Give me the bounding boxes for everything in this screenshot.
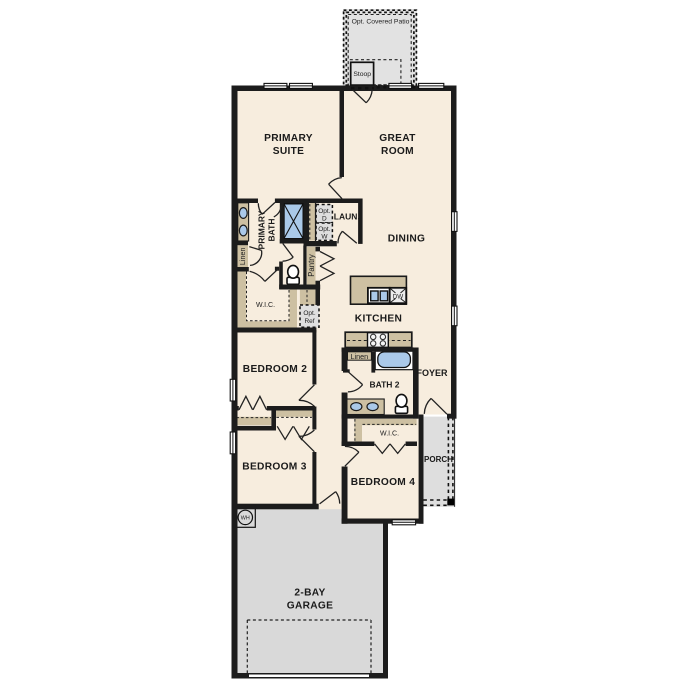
svg-text:KITCHEN: KITCHEN [355,314,402,325]
svg-text:PRIMARY: PRIMARY [264,133,313,144]
svg-text:GARAGE: GARAGE [287,601,334,612]
svg-text:Stoop: Stoop [353,71,371,78]
svg-text:Opt. Covered Patio: Opt. Covered Patio [352,18,410,25]
svg-text:FOYER: FOYER [416,368,448,378]
svg-text:GREAT: GREAT [379,133,416,144]
svg-text:Linen: Linen [351,352,369,361]
svg-text:Opt.: Opt. [318,208,330,215]
svg-text:BATH: BATH [267,219,277,242]
svg-text:BEDROOM 3: BEDROOM 3 [242,462,306,473]
svg-text:W: W [321,234,328,241]
svg-text:Opt.: Opt. [318,226,330,233]
svg-text:BEDROOM 4: BEDROOM 4 [351,477,415,488]
svg-text:ROOM: ROOM [381,146,414,157]
svg-text:W.I.C.: W.I.C. [256,302,275,309]
svg-text:DINING: DINING [388,234,425,245]
svg-text:BEDROOM 2: BEDROOM 2 [243,364,307,375]
svg-text:WH: WH [241,516,250,522]
svg-text:Ref: Ref [304,318,314,325]
svg-text:PORCH: PORCH [424,455,453,464]
svg-text:2-BAY: 2-BAY [294,588,325,599]
svg-text:Opt.: Opt. [303,310,315,317]
svg-text:SUITE: SUITE [273,146,305,157]
svg-text:Pantry: Pantry [307,254,316,277]
svg-text:BATH 2: BATH 2 [369,380,399,390]
svg-text:LAUN.: LAUN. [334,212,360,222]
svg-text:Linen: Linen [238,248,247,266]
svg-text:DW: DW [393,294,404,301]
svg-text:W.I.C.: W.I.C. [380,431,399,438]
svg-text:PRIMARY: PRIMARY [257,210,267,249]
svg-text:D: D [322,216,327,223]
